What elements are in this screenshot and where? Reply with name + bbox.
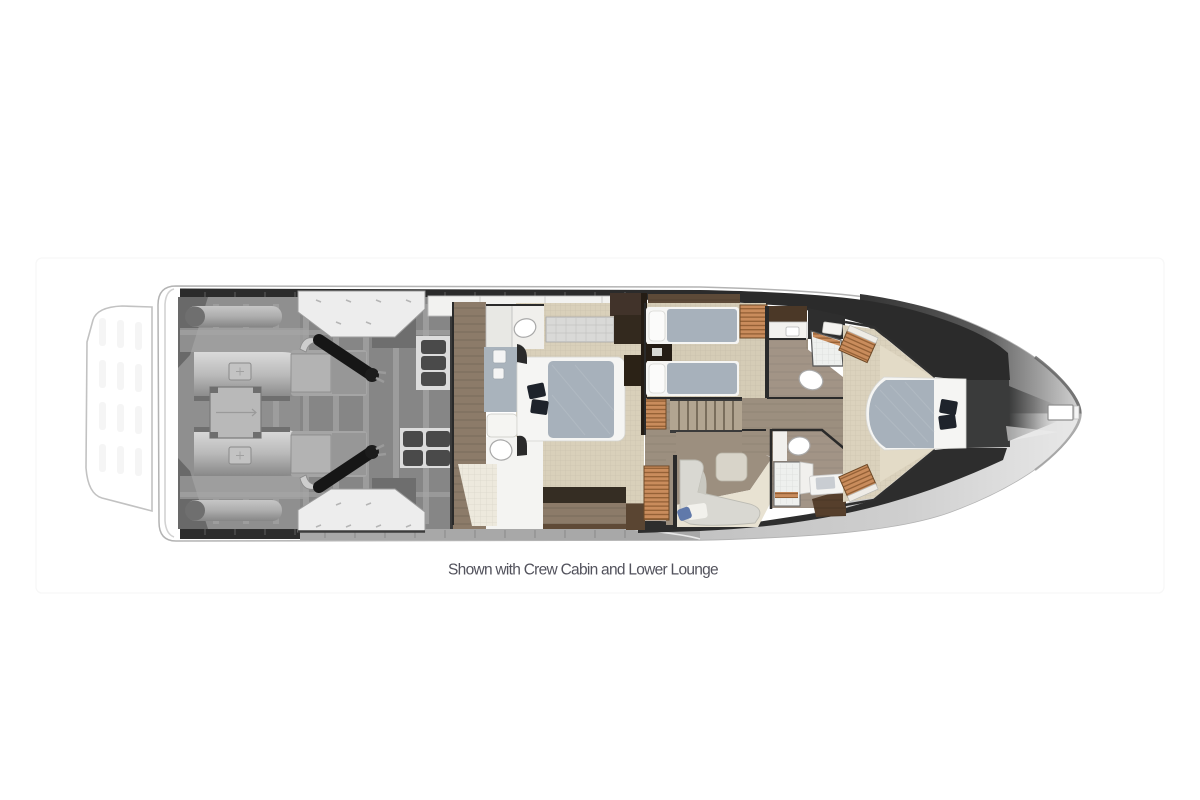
svg-text:Shown with Crew Cabin and Lowe: Shown with Crew Cabin and Lower Lounge (448, 562, 718, 579)
